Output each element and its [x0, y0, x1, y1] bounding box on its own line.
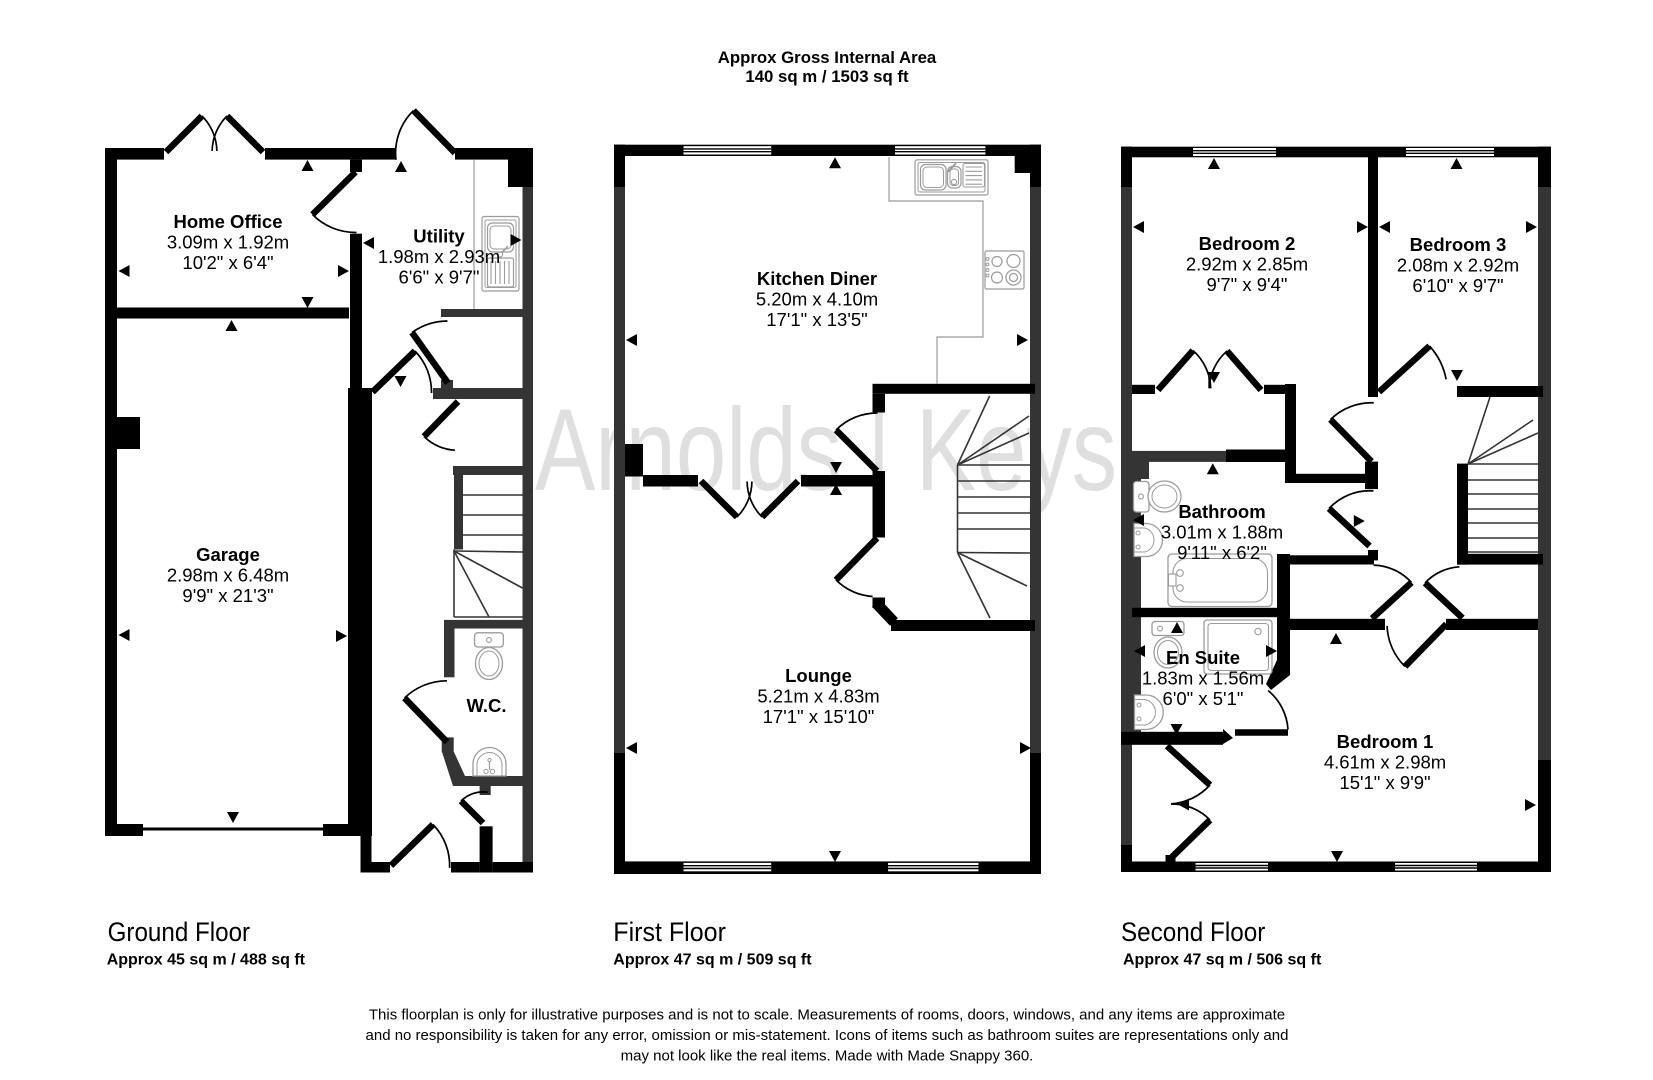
svg-text:Approx 47 sq m / 506 sq ft: Approx 47 sq m / 506 sq ft: [1123, 952, 1322, 969]
svg-text:6'10" x 9'7": 6'10" x 9'7": [1412, 275, 1503, 296]
svg-text:First Floor: First Floor: [613, 917, 726, 947]
svg-text:Kitchen Diner: Kitchen Diner: [757, 268, 877, 289]
svg-text:and no responsibility is taken: and no responsibility is taken for any e…: [366, 1027, 1289, 1044]
svg-text:Lounge: Lounge: [785, 665, 852, 686]
svg-text:6'6" x 9'7": 6'6" x 9'7": [399, 267, 480, 288]
svg-text:Approx 45 sq m / 488 sq ft: Approx 45 sq m / 488 sq ft: [107, 952, 306, 969]
svg-text:Garage: Garage: [196, 544, 260, 565]
svg-text:Bedroom 1: Bedroom 1: [1337, 731, 1434, 752]
svg-text:1.98m x 2.93m: 1.98m x 2.93m: [378, 246, 500, 267]
svg-text:1.83m x 1.56m: 1.83m x 1.56m: [1142, 668, 1264, 689]
svg-text:17'1" x 13'5": 17'1" x 13'5": [766, 309, 867, 330]
svg-text:3.01m x 1.88m: 3.01m x 1.88m: [1161, 522, 1283, 543]
svg-text:2.92m x 2.85m: 2.92m x 2.85m: [1186, 254, 1308, 275]
svg-text:140 sq m / 1503 sq ft: 140 sq m / 1503 sq ft: [745, 67, 909, 86]
svg-text:10'2" x 6'4": 10'2" x 6'4": [182, 252, 273, 273]
svg-text:Bedroom 3: Bedroom 3: [1410, 234, 1507, 255]
svg-text:Ground Floor: Ground Floor: [108, 917, 251, 947]
svg-text:4.61m x 2.98m: 4.61m x 2.98m: [1324, 752, 1446, 773]
svg-text:Approx Gross Internal Area: Approx Gross Internal Area: [718, 48, 937, 67]
svg-text:W.C.: W.C.: [466, 695, 506, 716]
svg-text:5.21m x 4.83m: 5.21m x 4.83m: [757, 686, 879, 707]
svg-text:Approx 47 sq m / 509 sq ft: Approx 47 sq m / 509 sq ft: [613, 952, 812, 969]
svg-text:17'1" x 15'10": 17'1" x 15'10": [763, 706, 875, 727]
svg-text:may not look like the real ite: may not look like the real items. Made w…: [621, 1048, 1034, 1065]
svg-text:Bedroom 2: Bedroom 2: [1199, 233, 1296, 254]
svg-text:Bathroom: Bathroom: [1178, 501, 1265, 522]
svg-text:6'0" x 5'1": 6'0" x 5'1": [1163, 688, 1244, 709]
svg-text:Second Floor: Second Floor: [1121, 917, 1265, 947]
svg-text:En Suite: En Suite: [1166, 647, 1240, 668]
svg-text:Home Office: Home Office: [174, 211, 283, 232]
svg-text:Utility: Utility: [413, 226, 465, 247]
svg-text:15'1" x 9'9": 15'1" x 9'9": [1339, 772, 1430, 793]
svg-text:9'9" x 21'3": 9'9" x 21'3": [182, 585, 273, 606]
svg-text:9'7" x 9'4": 9'7" x 9'4": [1207, 274, 1288, 295]
svg-text:2.98m x 6.48m: 2.98m x 6.48m: [167, 565, 289, 586]
svg-text:9'11" x 6'2": 9'11" x 6'2": [1177, 542, 1267, 563]
svg-text:3.09m x 1.92m: 3.09m x 1.92m: [167, 232, 289, 253]
svg-text:This floorplan is only for ill: This floorplan is only for illustrative …: [369, 1007, 1285, 1024]
svg-text:2.08m x 2.92m: 2.08m x 2.92m: [1397, 255, 1519, 276]
svg-text:5.20m x 4.10m: 5.20m x 4.10m: [756, 289, 878, 310]
